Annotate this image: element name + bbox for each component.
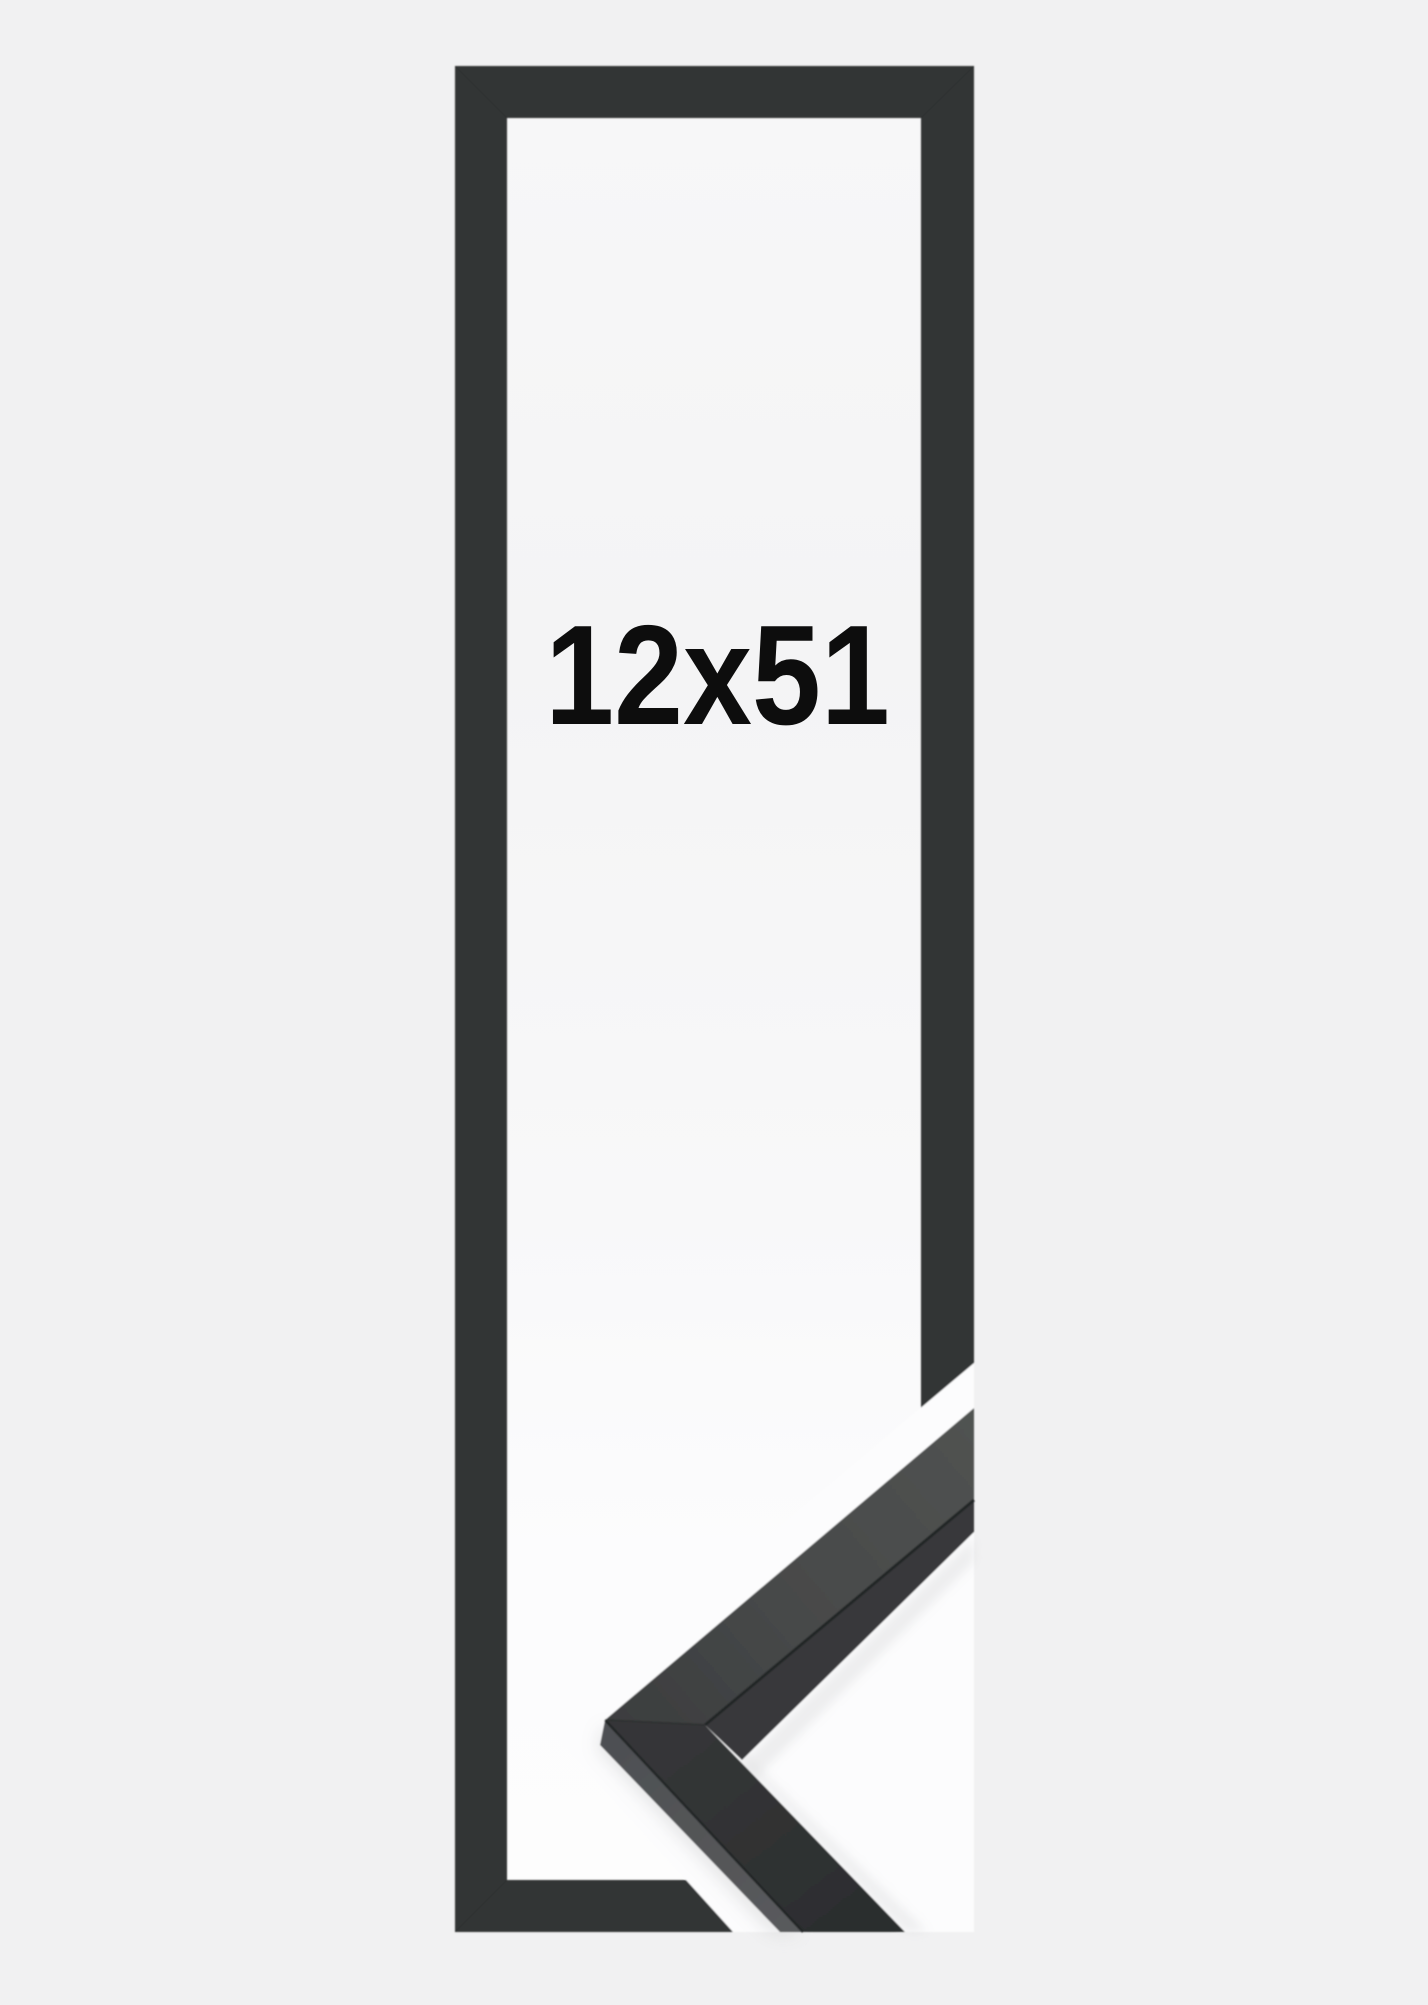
svg-text:12x51: 12x51	[545, 596, 890, 755]
